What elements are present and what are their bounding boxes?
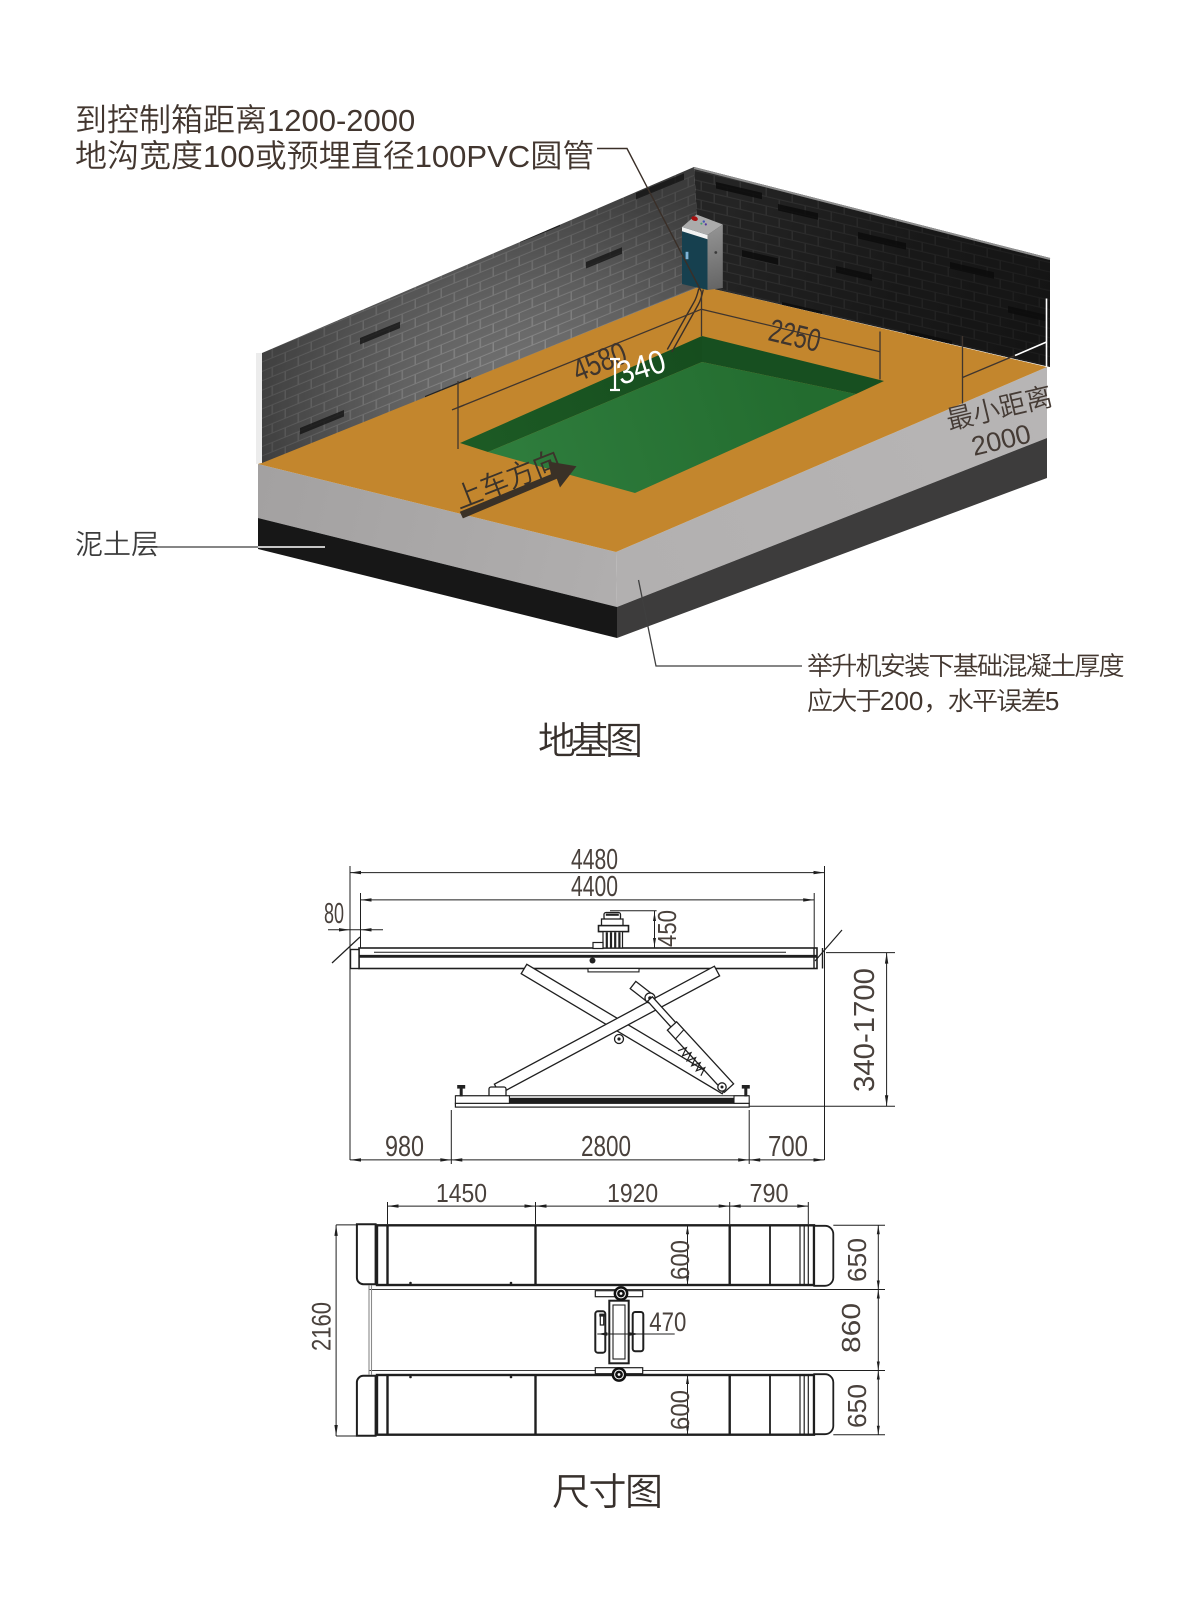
svg-text:860: 860 [836, 1303, 866, 1353]
svg-text:650: 650 [842, 1238, 872, 1282]
svg-text:100: 100 [415, 139, 467, 174]
svg-text:1920: 1920 [607, 1178, 658, 1208]
svg-text:80: 80 [324, 898, 344, 930]
svg-text:790: 790 [750, 1178, 789, 1208]
svg-text:200: 200 [880, 686, 923, 716]
svg-text:5: 5 [1045, 686, 1059, 716]
svg-text:1200-2000: 1200-2000 [267, 103, 415, 138]
svg-text:2800: 2800 [581, 1131, 631, 1163]
svg-text:700: 700 [768, 1131, 808, 1163]
svg-text:600: 600 [665, 1390, 695, 1430]
svg-text:980: 980 [385, 1131, 424, 1163]
svg-text:650: 650 [842, 1384, 872, 1428]
svg-text:1450: 1450 [436, 1178, 487, 1208]
svg-text:470: 470 [649, 1307, 686, 1337]
svg-text:2160: 2160 [307, 1302, 337, 1351]
svg-text:100: 100 [203, 139, 255, 174]
svg-text:PVC: PVC [466, 139, 530, 174]
svg-text:450: 450 [652, 910, 682, 947]
svg-text:4400: 4400 [571, 871, 618, 903]
svg-text:340-1700: 340-1700 [849, 968, 881, 1092]
svg-text:600: 600 [665, 1240, 695, 1280]
